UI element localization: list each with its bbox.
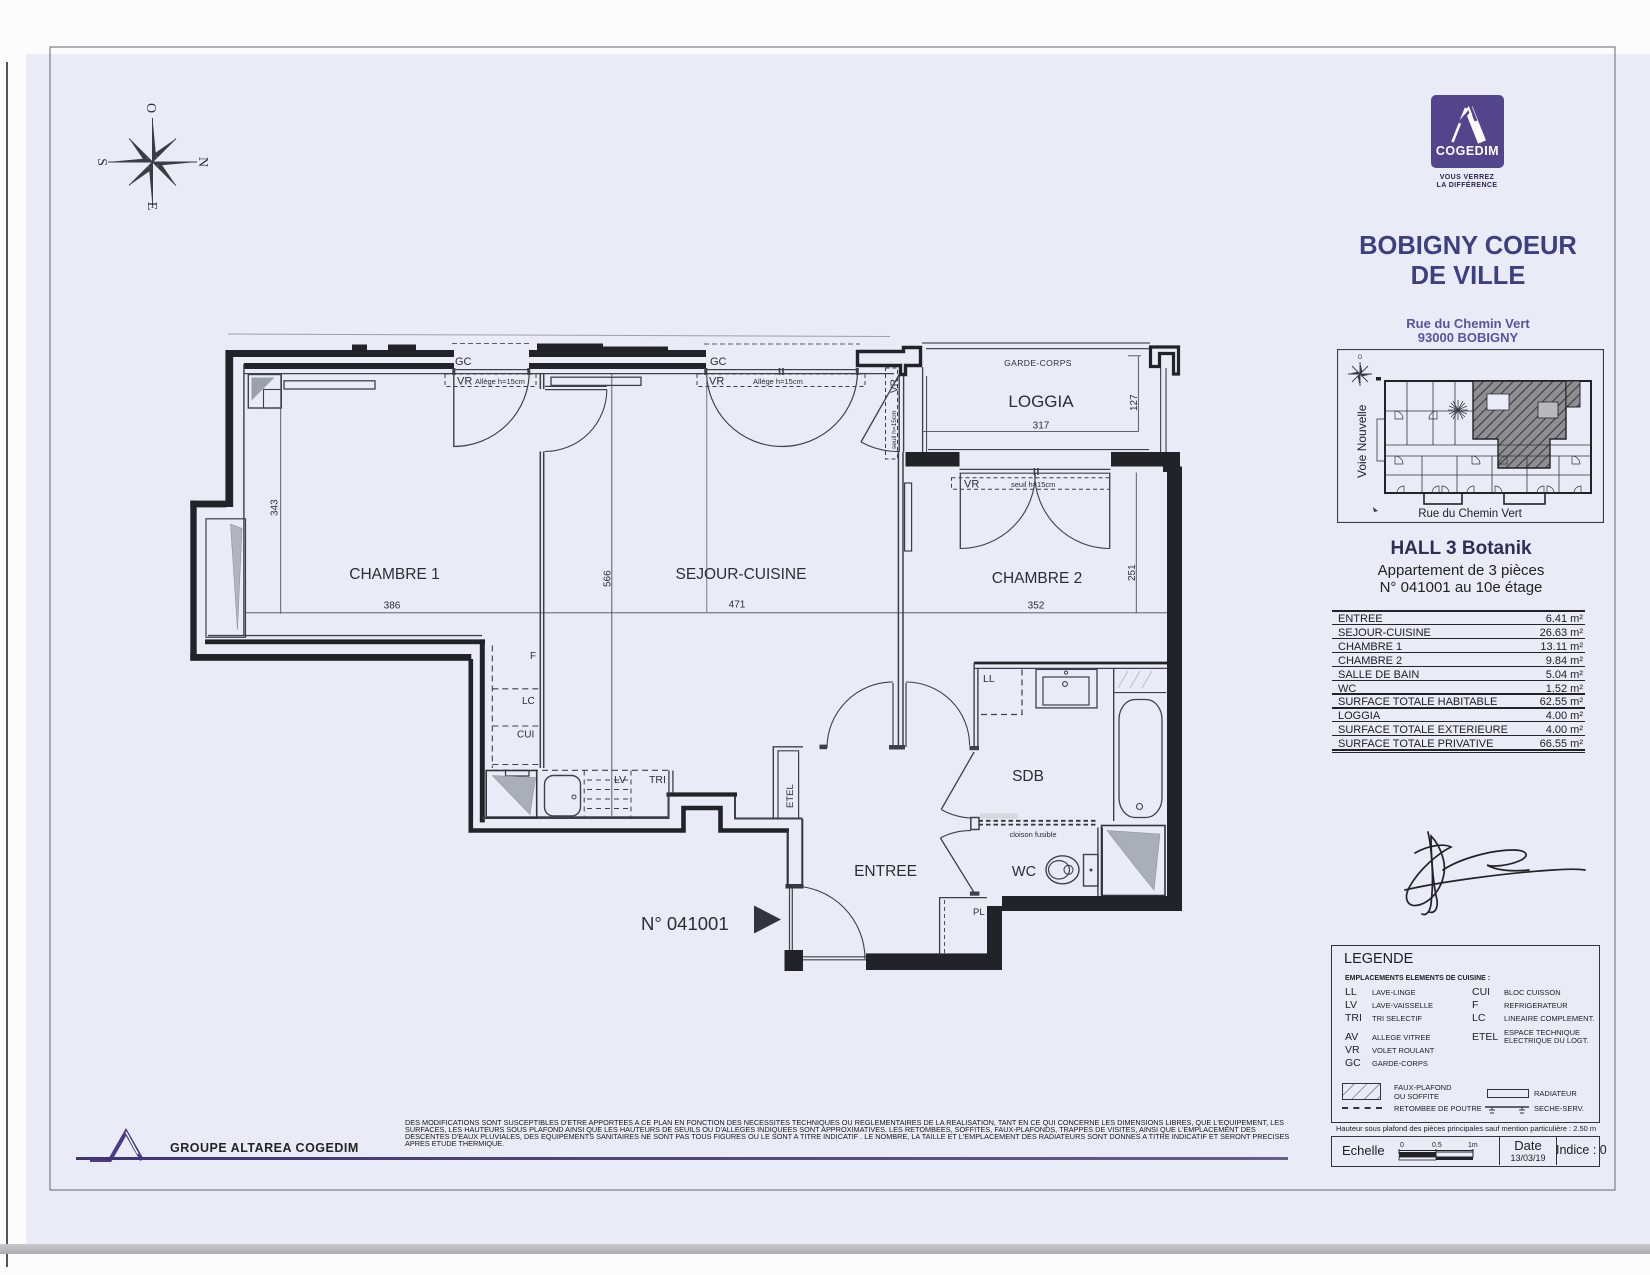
svg-text:GC: GC [455,356,472,368]
svg-text:F: F [530,651,536,662]
svg-text:LV: LV [614,774,626,786]
svg-text:Rue du Chemin Vert: Rue du Chemin Vert [1418,508,1522,520]
svg-text:Voie Nouvelle: Voie Nouvelle [1355,404,1369,478]
svg-text:O: O [1358,355,1363,361]
svg-text:N: N [195,157,210,167]
svg-text:Allège h=15cm: Allège h=15cm [753,377,803,386]
svg-text:seuil h=15cm: seuil h=15cm [1011,480,1055,489]
svg-text:352: 352 [1028,601,1045,612]
svg-text:SDB: SDB [1012,768,1044,785]
svg-text:VR: VR [457,376,472,388]
svg-text:LL: LL [983,673,995,685]
svg-text:0: 0 [1400,1142,1404,1149]
svg-text:CUI: CUI [517,730,534,741]
svg-text:VR: VR [709,376,724,388]
svg-text:GC: GC [710,356,727,368]
svg-text:N° 041001: N° 041001 [641,913,729,934]
svg-text:S: S [94,158,109,166]
svg-text:GARDE-CORPS: GARDE-CORPS [1004,358,1072,368]
svg-text:Allège h=15cm: Allège h=15cm [475,377,525,386]
svg-text:COGEDIM: COGEDIM [1436,144,1499,158]
svg-text:TRI: TRI [649,774,666,786]
svg-text:317: 317 [1033,421,1050,432]
svg-text:CHAMBRE 1: CHAMBRE 1 [349,566,439,583]
svg-text:PL: PL [973,907,985,918]
svg-text:O: O [143,103,158,113]
svg-text:VR: VR [964,479,979,491]
svg-text:CHAMBRE 2: CHAMBRE 2 [992,570,1082,587]
svg-text:E: E [144,202,159,211]
svg-text:seuil h=15cm: seuil h=15cm [891,411,898,449]
svg-text:386: 386 [384,601,401,612]
svg-text:cloison fusible: cloison fusible [1009,830,1056,839]
svg-text:SEJOUR-CUISINE: SEJOUR-CUISINE [676,566,807,583]
svg-text:343: 343 [270,499,281,516]
svg-text:LC: LC [522,696,535,707]
svg-text:1m: 1m [1468,1142,1478,1149]
svg-text:0.5: 0.5 [1432,1142,1442,1149]
svg-text:LOGGIA: LOGGIA [1008,392,1074,411]
svg-text:ETEL: ETEL [785,784,796,808]
svg-text:251: 251 [1127,564,1138,581]
svg-text:471: 471 [729,600,746,611]
svg-text:566: 566 [603,570,614,587]
svg-text:WC: WC [1012,864,1036,880]
svg-text:ENTREE: ENTREE [854,863,917,880]
